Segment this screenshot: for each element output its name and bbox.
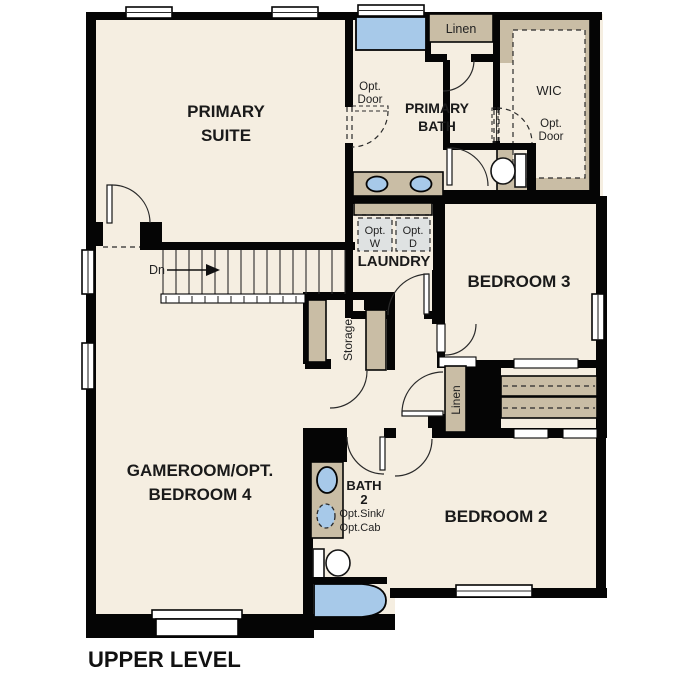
- wic-label: WIC: [536, 83, 561, 98]
- bath2-label-2: 2: [360, 492, 367, 507]
- sink: [411, 177, 432, 192]
- opening-closet2-sliding-left: [514, 429, 548, 438]
- wall-exterior-right-low: [596, 438, 606, 596]
- wall-linen-stub-right: [471, 54, 500, 62]
- floor-plan-drawing: PRIMARY SUITE PRIMARY BATH WIC Opt. Door…: [0, 0, 687, 687]
- laundry-label: LAUNDRY: [358, 253, 431, 270]
- linen-hall-label: Linen: [449, 385, 463, 414]
- gameroom-label-1: GAMEROOM/OPT.: [127, 461, 273, 480]
- wall-stair-corner: [140, 222, 162, 244]
- sink: [317, 467, 337, 493]
- bath-opt-door-label-2: Door: [358, 94, 383, 106]
- window: [272, 7, 318, 18]
- window: [126, 7, 172, 18]
- storage-shelf-right: [366, 310, 386, 370]
- opening-bedroom2-door: [396, 428, 432, 438]
- bath2-opt-sink-label-2: Opt.Cab: [340, 522, 381, 534]
- opening-closet2-sliding-right: [563, 429, 597, 438]
- opt-sink: [317, 504, 335, 528]
- wall-wic-west: [493, 64, 500, 110]
- opt-w-label-1: Opt.: [365, 225, 386, 237]
- primary-bath-label-1: PRIMARY: [405, 100, 470, 116]
- bath2-label-1: BATH: [346, 478, 381, 493]
- wall-closet-block: [465, 366, 501, 432]
- linen-top-label: Linen: [446, 22, 477, 36]
- opt-d-label-2: D: [409, 238, 417, 250]
- bath2-tub: [314, 584, 386, 617]
- wall-wc-bottom: [443, 190, 536, 197]
- wic-opt-door-label-2: Door: [539, 131, 564, 143]
- window: [358, 5, 424, 16]
- opt-w-label-2: W: [370, 238, 381, 250]
- window: [82, 343, 94, 389]
- bedroom2-label: BEDROOM 2: [445, 507, 548, 526]
- wic-opt-door-label-1: Opt.: [540, 118, 562, 130]
- plan-title: UPPER LEVEL: [88, 647, 241, 672]
- bedroom3-label: BEDROOM 3: [468, 272, 571, 291]
- wall-exterior-left: [86, 12, 96, 618]
- wall-stair-top: [140, 242, 355, 250]
- primary-tub: [356, 17, 426, 50]
- storage-label: Storage: [341, 319, 355, 361]
- storage-shelf-left: [308, 300, 326, 362]
- window: [592, 294, 604, 340]
- wall-wc-right: [527, 143, 536, 197]
- opening-bedroom3-door: [437, 324, 445, 352]
- bedroom-closet-shelves: [501, 376, 597, 418]
- sink: [367, 177, 388, 192]
- floor-plan-page: PRIMARY SUITE PRIMARY BATH WIC Opt. Door…: [0, 0, 687, 687]
- wall-nook-stub: [93, 222, 103, 246]
- gameroom-label-2: BEDROOM 4: [149, 485, 253, 504]
- wall-bath2-nw-block: [307, 428, 347, 462]
- opt-d-label-1: Opt.: [403, 225, 424, 237]
- bath-opt-door-label-1: Opt.: [359, 81, 381, 93]
- wall-wc-top: [450, 143, 534, 150]
- window: [152, 610, 242, 636]
- stair-railing: [161, 294, 305, 303]
- wall-bedroom3-west: [437, 204, 445, 324]
- window: [456, 585, 532, 597]
- wall-bath2-tub-divider: [311, 577, 387, 584]
- opening-closet3-sliding: [514, 359, 578, 368]
- primary-bath-label-2: BATH: [418, 118, 456, 134]
- bath2-vanity: [311, 462, 343, 538]
- window: [82, 250, 94, 294]
- wall-suite-bath-upper: [345, 12, 353, 107]
- bath2-opt-sink-label-1: Opt.Sink/: [339, 508, 385, 520]
- primary-suite-label-2: SUITE: [201, 126, 251, 145]
- wall-storage-east: [387, 306, 395, 370]
- stairs-dn-label: Dn: [149, 263, 165, 277]
- primary-vanity: [353, 172, 443, 196]
- primary-suite-label-1: PRIMARY: [187, 102, 265, 121]
- laundry-shelf: [354, 203, 432, 215]
- wall-exterior-right-wic: [590, 12, 600, 198]
